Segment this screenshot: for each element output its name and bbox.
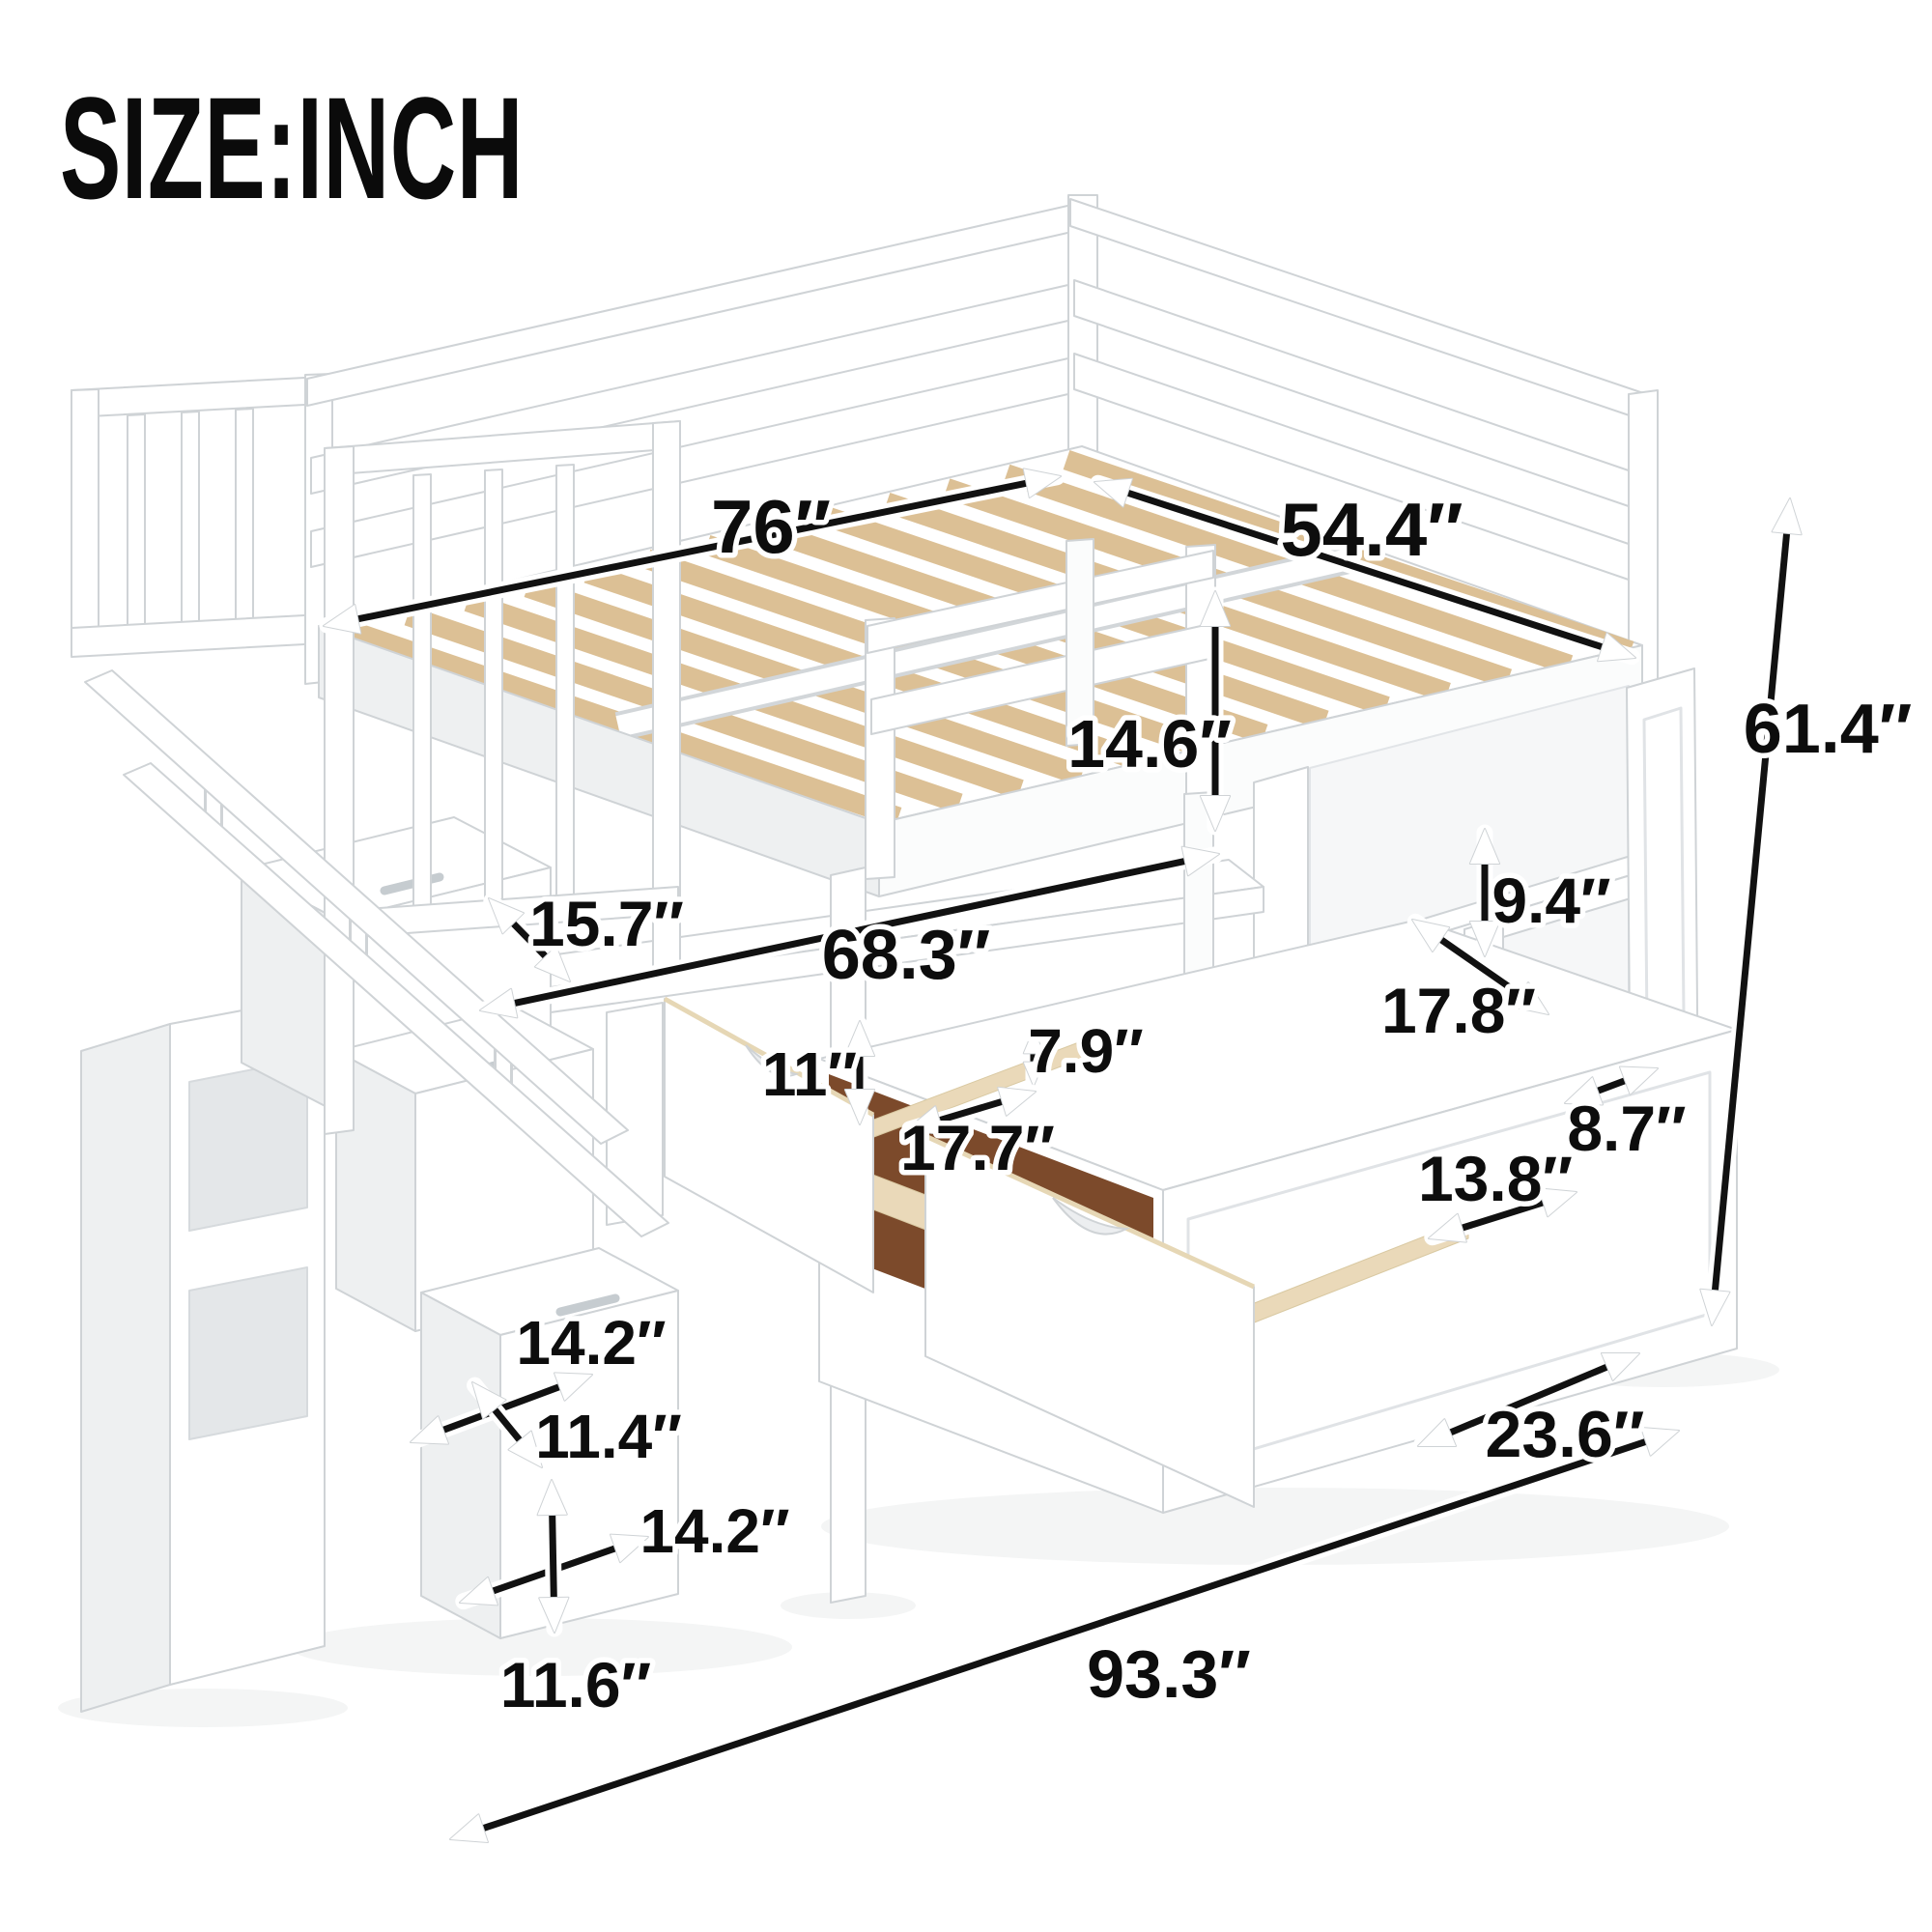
size-diagram-page: SIZE:INCH 76″ 54.4″ 14.6″ 15.7″ 68.3″ 9.… — [0, 0, 1932, 1932]
dim-drawer-opening-height: 7.9″ — [1028, 1016, 1144, 1086]
dim-under-bed-length: 68.3″ — [822, 917, 991, 994]
dim-bottom-shelf-width: 13.8″ — [1418, 1143, 1573, 1214]
dim-step-top-depth: 14.2″ — [516, 1308, 666, 1378]
dim-bottom-step-height: 11.6″ — [500, 1649, 651, 1720]
dim-bed-width: 54.4″ — [1280, 487, 1463, 572]
dim-cubby-opening-height: 9.4″ — [1492, 865, 1610, 936]
page-title: SIZE:INCH — [60, 67, 524, 229]
dim-drawer-depth: 17.7″ — [900, 1112, 1055, 1183]
dim-side-shelf-depth: 8.7″ — [1567, 1093, 1686, 1164]
dim-storage-depth: 23.6″ — [1486, 1398, 1645, 1471]
dim-stair-landing-depth: 15.7″ — [529, 888, 684, 959]
dim-cubby-shelf-depth: 17.8″ — [1381, 975, 1536, 1046]
dim-overall-length: 93.3″ — [1087, 1636, 1251, 1712]
dim-bed-length: 76″ — [711, 484, 831, 569]
loft-bed-size-diagram: SIZE:INCH 76″ 54.4″ 14.6″ 15.7″ 68.3″ 9.… — [0, 0, 1932, 1932]
dim-bottom-step-width: 14.2″ — [639, 1496, 789, 1566]
dim-overall-height: 61.4″ — [1744, 691, 1913, 768]
dim-guardrail-height: 14.6″ — [1067, 706, 1232, 781]
dim-drawer-front-height: 11″ — [762, 1039, 857, 1109]
dim-step-width: 11.4″ — [535, 1402, 682, 1471]
